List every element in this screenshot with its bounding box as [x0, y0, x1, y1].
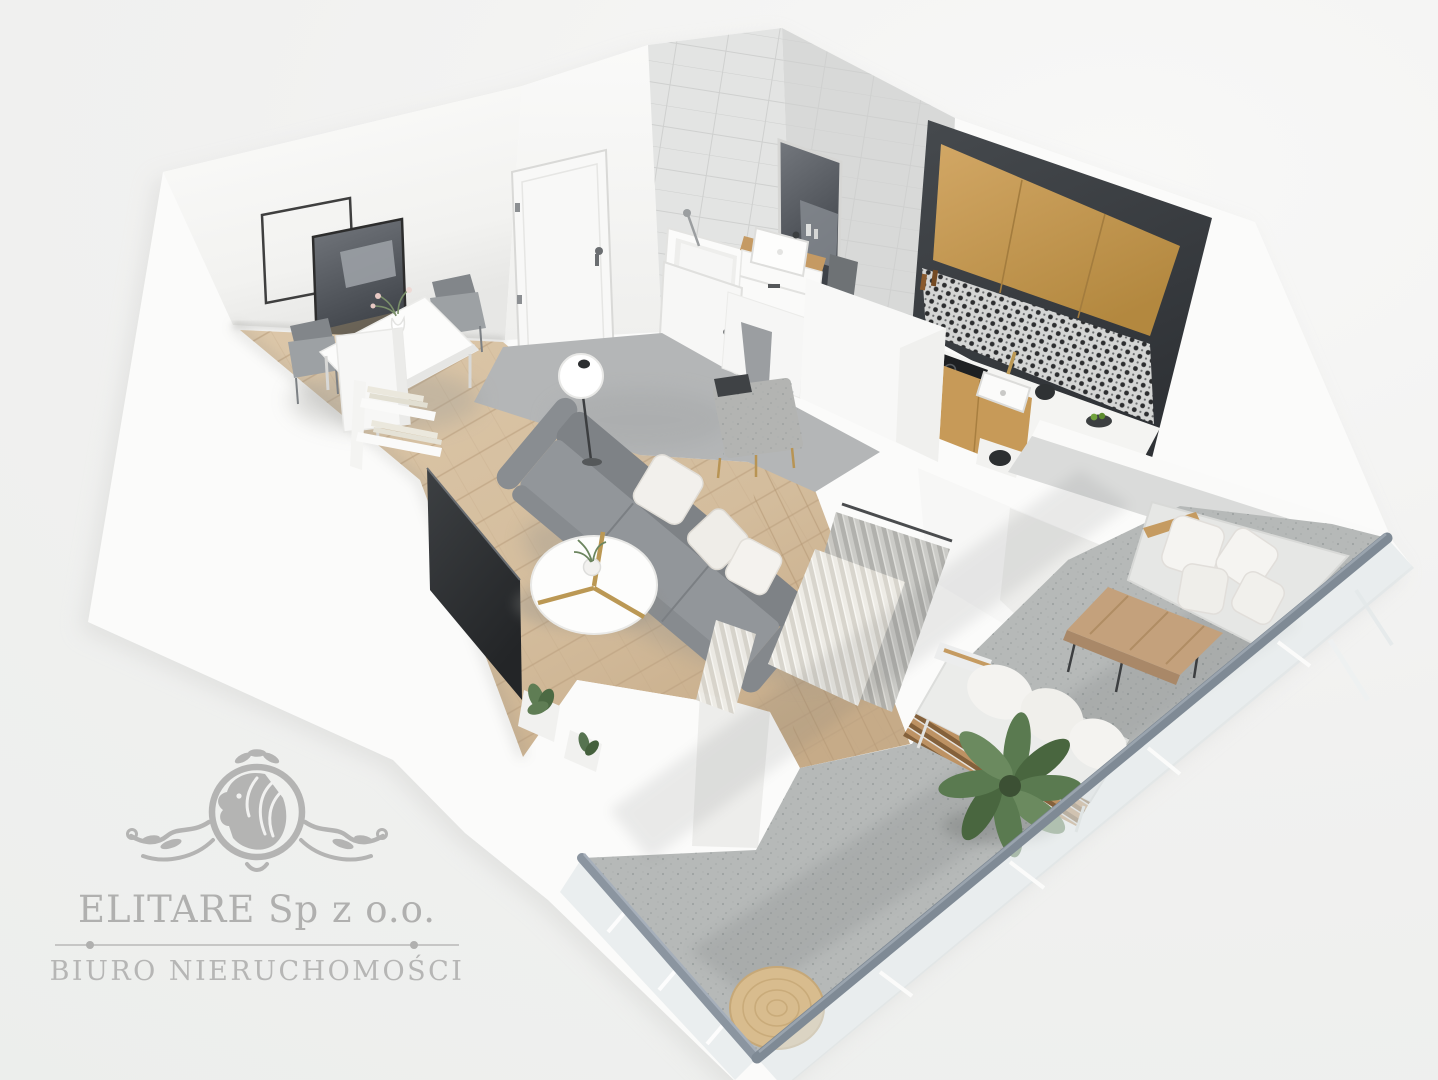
- door-hinge: [517, 295, 522, 304]
- cosmetic-bottles: [806, 224, 811, 236]
- kettle: [1035, 384, 1055, 400]
- watermark-tagline: BIURO NIERUCHOMOŚCI: [37, 956, 477, 987]
- lion-eye: [236, 793, 241, 798]
- watermark-divider: [55, 940, 459, 950]
- entry-wall: [505, 45, 665, 378]
- watermark-company: ELITARE Sp z o.o.: [37, 888, 477, 931]
- coffee-grinder: [989, 450, 1011, 466]
- floorplan-render-page: ELITARE Sp z o.o. BIURO NIERUCHOMOŚCI: [0, 0, 1438, 1080]
- watermark-logo: ELITARE Sp z o.o. BIURO NIERUCHOMOŚCI: [37, 732, 477, 987]
- door-hinge: [515, 203, 520, 212]
- door-handle: [595, 247, 603, 255]
- lion-emblem: [124, 732, 390, 890]
